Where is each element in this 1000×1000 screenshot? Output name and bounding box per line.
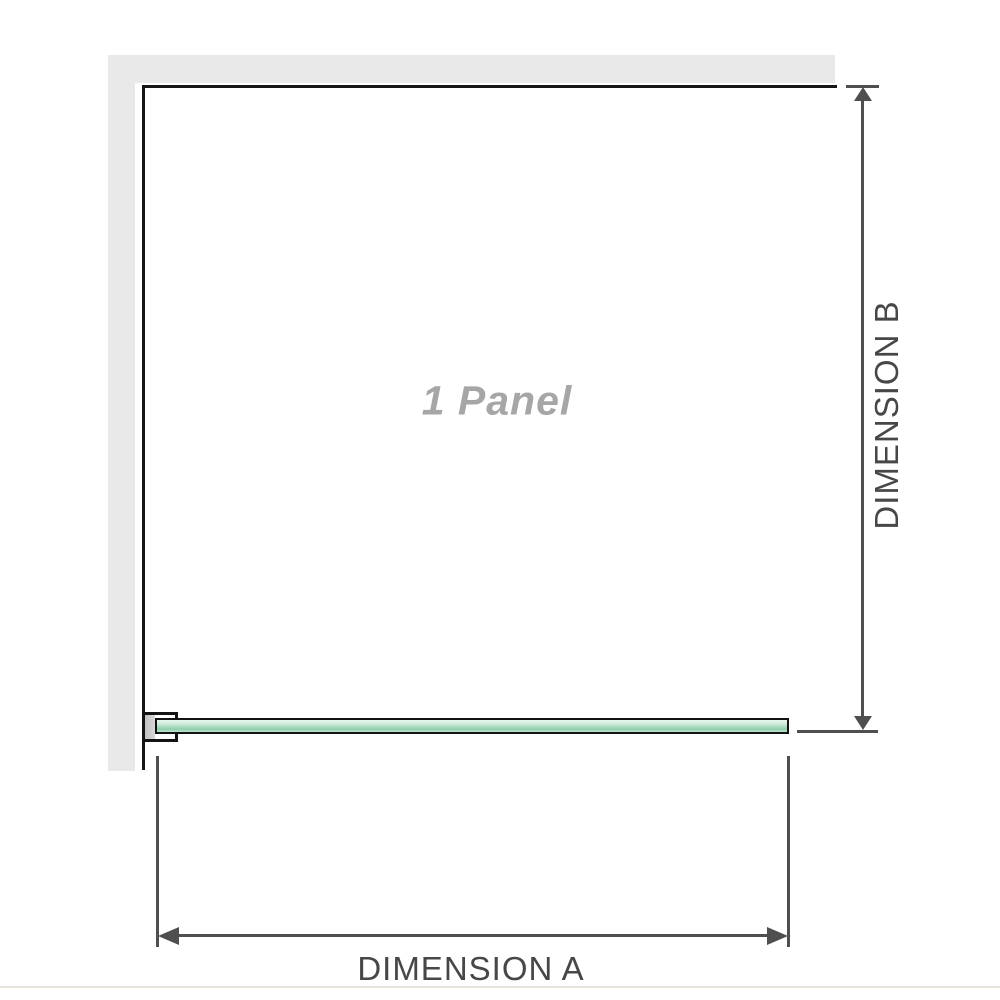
dimension-b-label: DIMENSION B [868, 300, 906, 529]
dimension-a-extension-right [787, 756, 790, 947]
bracket-pad [145, 715, 155, 739]
dimension-b-line [861, 99, 864, 719]
wall-left-bar [108, 55, 135, 771]
up-arrowhead-icon [854, 87, 872, 101]
diagram-canvas: 1 Panel DIMENSION B DIMENSION A [0, 0, 1000, 1000]
panel-label: 1 Panel [422, 378, 573, 425]
down-arrowhead-icon [854, 716, 872, 730]
dimension-b-tick-bottom [797, 730, 878, 733]
dimension-a-extension-left [156, 756, 159, 947]
dimension-a-label: DIMENSION A [357, 950, 584, 988]
page-bottom-rule [0, 986, 1000, 988]
left-arrowhead-icon [158, 927, 179, 945]
glass-panel-bar [155, 718, 789, 734]
wall-top-bar [108, 55, 835, 83]
dimension-a-line [166, 934, 780, 937]
right-arrowhead-icon [767, 927, 788, 945]
